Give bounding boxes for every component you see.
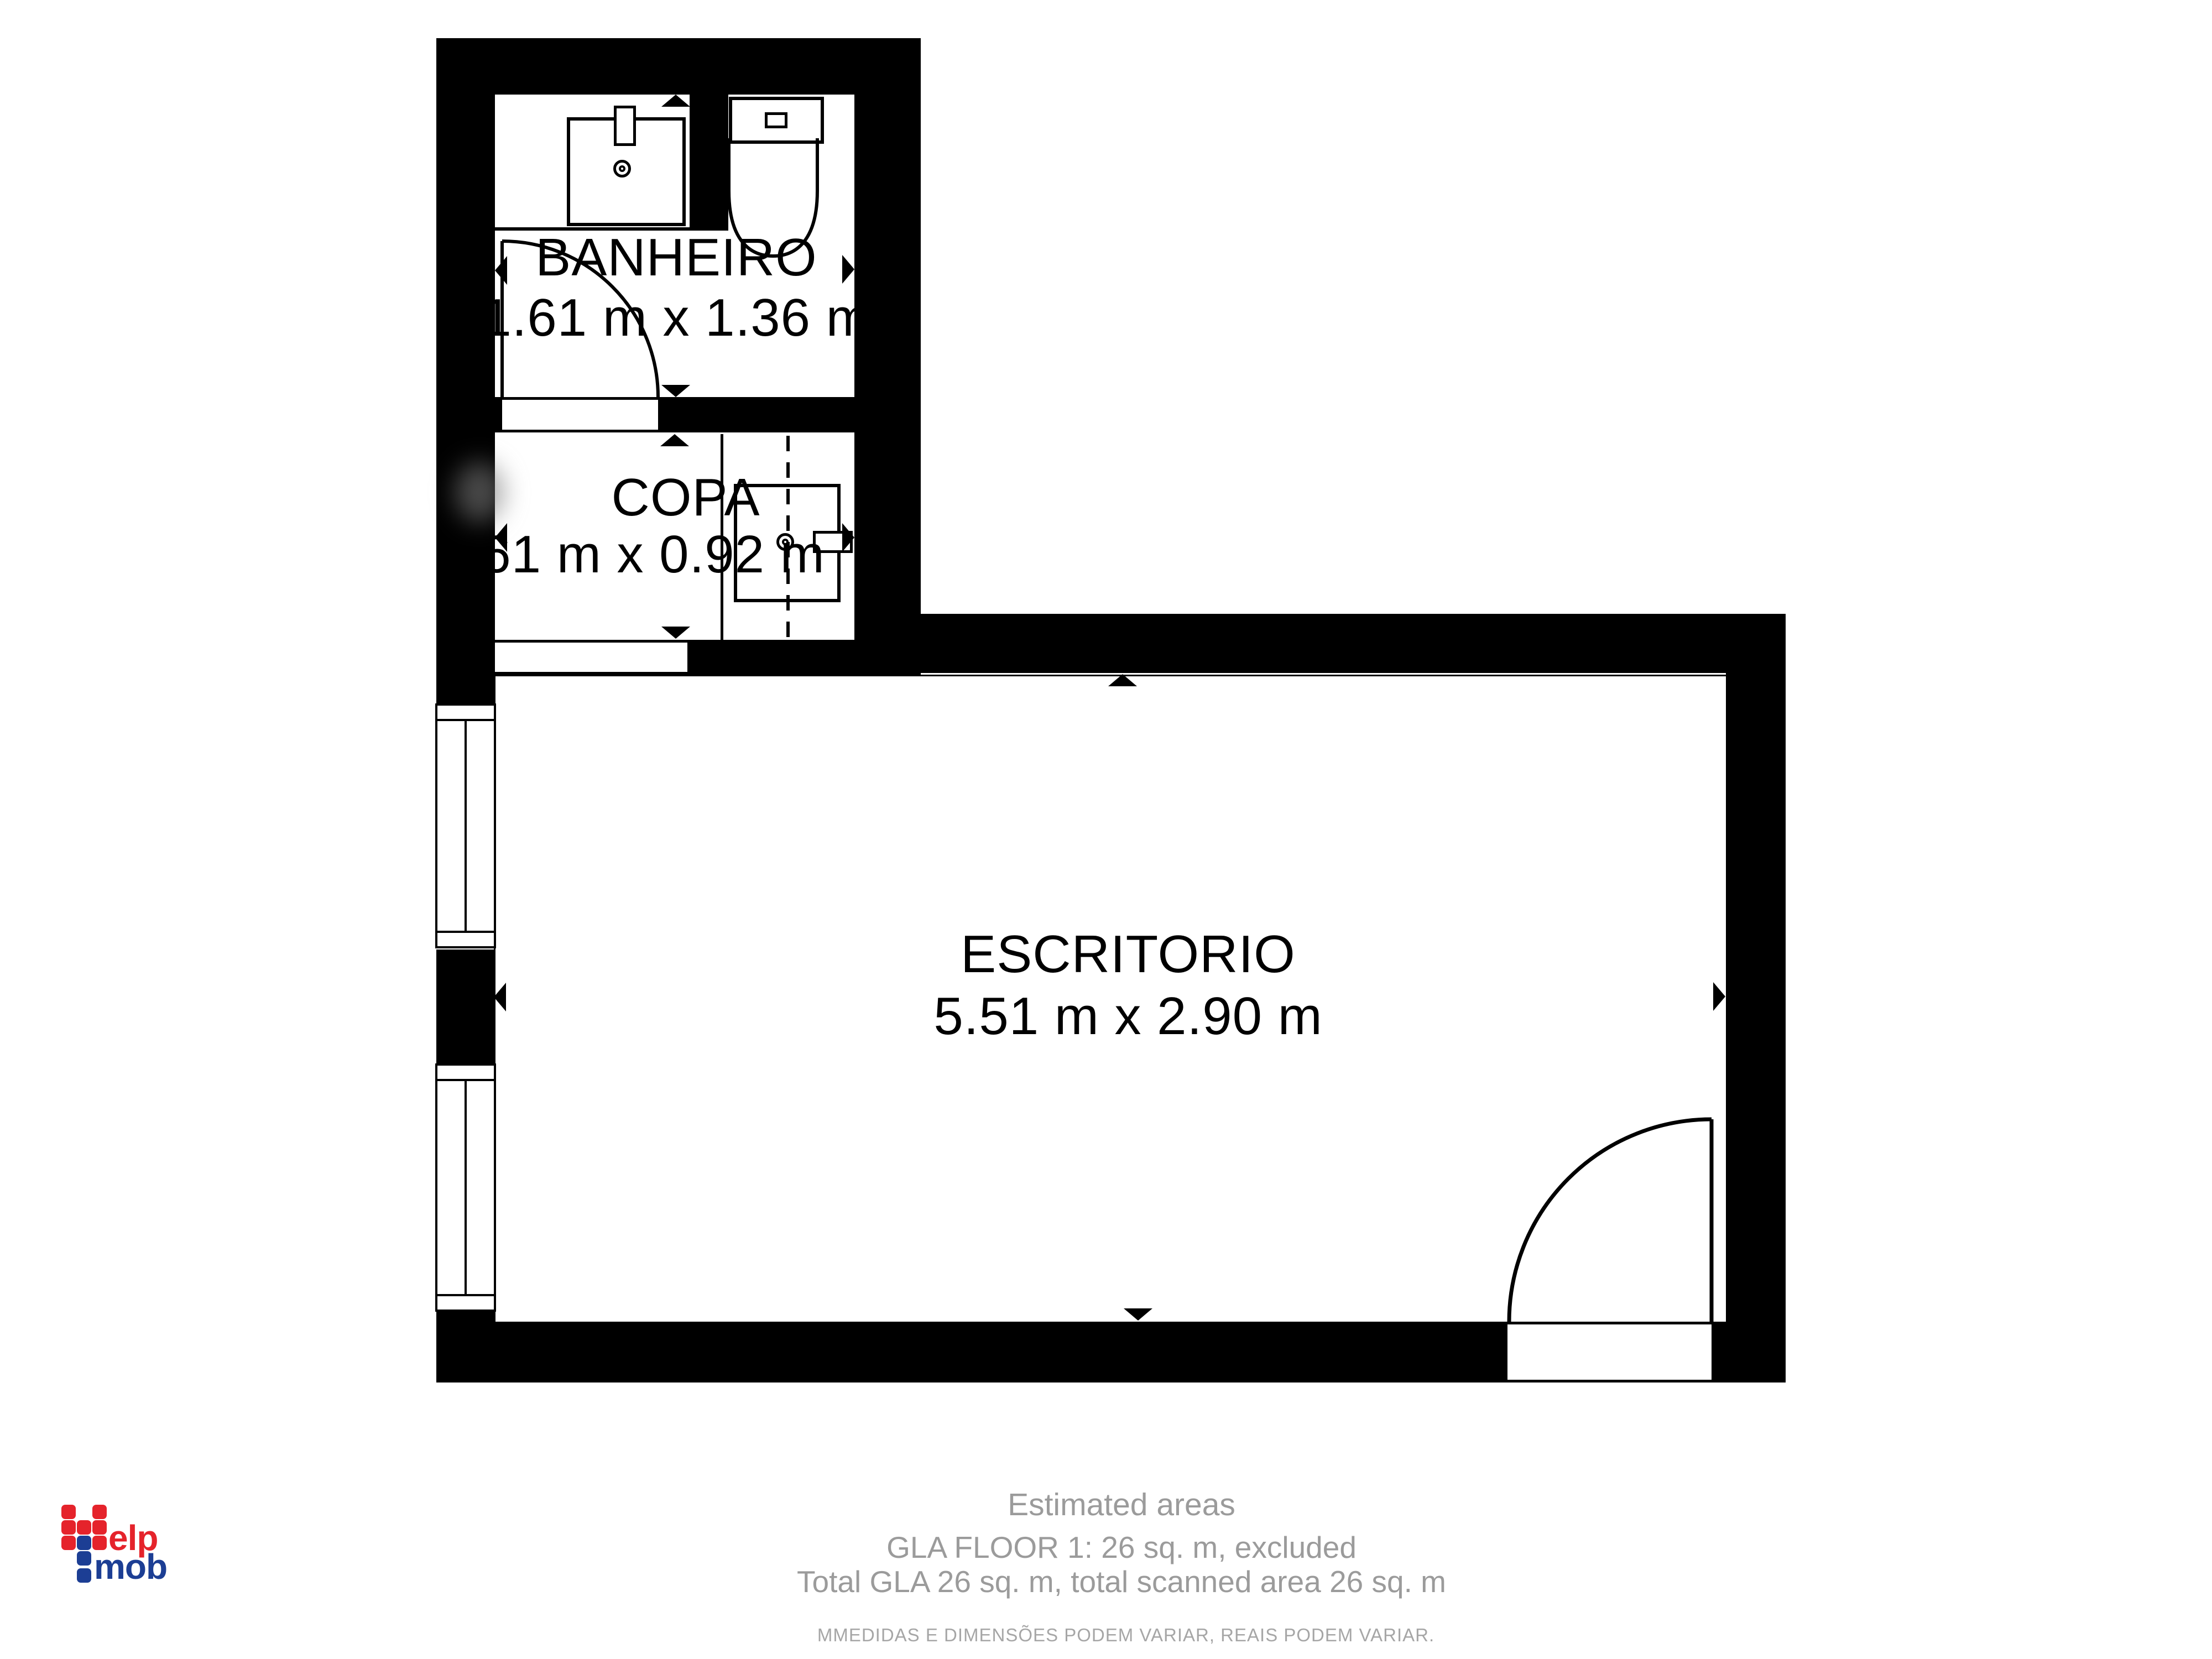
banheiro-label: BANHEIRO — [535, 227, 817, 288]
escritorio-arrow-up-icon — [1108, 674, 1137, 686]
copa-arrow-left-icon — [495, 523, 507, 552]
banheiro-arrow-up-icon — [661, 95, 690, 107]
logo-block-icon — [92, 1520, 107, 1535]
logo-word-bottom: mob — [94, 1546, 167, 1587]
banheiro-dimensions: 1.61 m x 1.36 m — [482, 288, 870, 348]
copa-passage-line-bottom — [494, 672, 687, 675]
logo-block-icon — [77, 1520, 91, 1535]
window-lower — [435, 1063, 496, 1312]
banheiro-door-opening — [502, 400, 658, 430]
escritorio-arrow-right-icon — [1713, 982, 1725, 1011]
escritorio-label: ESCRITORIO — [961, 924, 1296, 985]
wall-escritorio-right — [1726, 614, 1786, 1383]
copa-arrow-right-icon — [842, 523, 854, 552]
copa-arrow-up-icon — [660, 434, 689, 446]
logo-block-icon — [77, 1551, 91, 1566]
wall-left-between-windows — [436, 950, 495, 1063]
logo-block-icon — [77, 1536, 91, 1550]
escritorio-arrow-left-icon — [494, 983, 506, 1011]
escritorio-arrow-down-icon — [1124, 1308, 1152, 1321]
window-lower-center-line — [465, 1080, 467, 1295]
escritorio-door-opening — [1507, 1324, 1712, 1380]
wall-wing-right — [854, 38, 921, 675]
wall-top — [436, 38, 921, 95]
plan-curves-layer — [0, 0, 2212, 1659]
copa-arrow-down-icon — [661, 627, 690, 639]
logo-block-icon — [92, 1505, 107, 1519]
banheiro-arrow-left-icon — [495, 256, 507, 285]
logo-block-icon — [61, 1520, 76, 1535]
window-upper — [435, 703, 496, 948]
escritorio-dimensions: 5.51 m x 2.90 m — [933, 986, 1322, 1047]
copa-passage-line-top — [494, 640, 687, 643]
copa-label: COPA — [612, 467, 760, 528]
banheiro-arrow-right-icon — [842, 255, 854, 284]
logo-block-icon — [77, 1568, 91, 1583]
escritorio-door-arc — [1509, 1119, 1712, 1322]
wall-bathroom-stub — [690, 95, 728, 231]
scan-artifact — [455, 462, 504, 523]
window-upper-center-line — [465, 720, 467, 932]
wall-left-upper — [436, 38, 495, 703]
wall-escritorio-top — [854, 614, 1786, 673]
floorplan-page: BANHEIRO 1.61 m x 1.36 m COPA 1.61 m x 0… — [0, 0, 2212, 1659]
logo-block-icon — [61, 1505, 76, 1519]
logo-block-icon — [61, 1536, 76, 1550]
banheiro-arrow-down-icon — [661, 385, 690, 397]
